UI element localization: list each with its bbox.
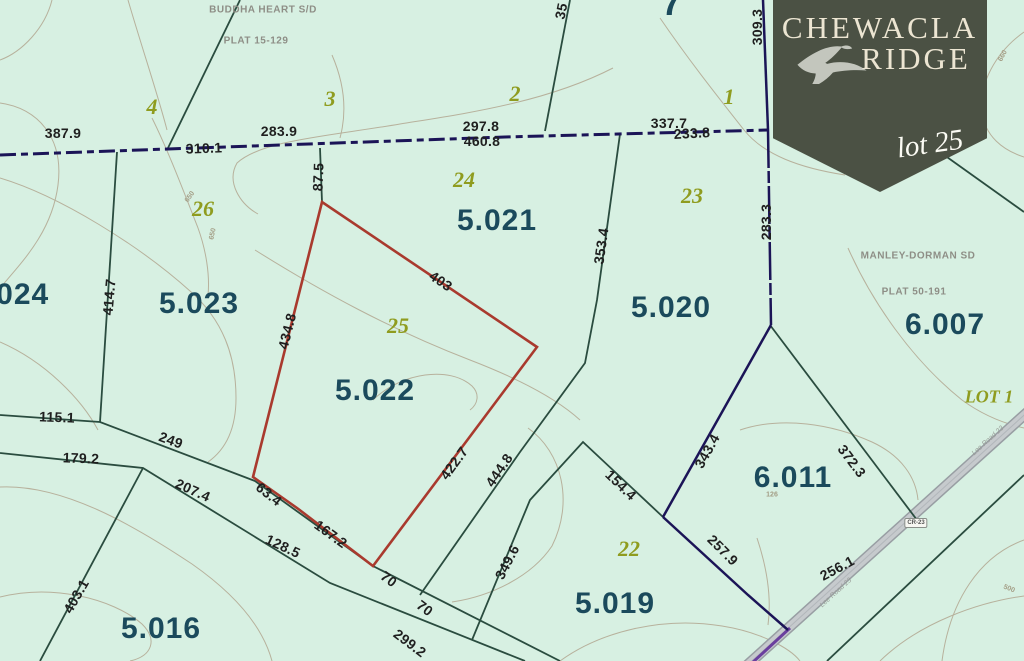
dimension-label: 87.5: [310, 163, 327, 192]
parcel-id-label: 5.020: [631, 291, 711, 325]
subdivision-label: PLAT 15-129: [224, 36, 289, 47]
lot-number-label: LOT 1: [965, 387, 1014, 408]
badge-title-line1: CHEWACLA: [773, 12, 987, 43]
parcel-id-label: 5.023: [159, 287, 239, 321]
dimension-label: 387.9: [45, 125, 82, 141]
parcel-id-label: .024: [0, 278, 49, 312]
dimension-label: 179.2: [62, 449, 99, 466]
lot-number-label: 24: [453, 167, 475, 193]
parcel-id-label: 5.022: [335, 374, 415, 408]
dimension-label: 283.3: [758, 204, 774, 241]
lot-number-label: 25: [387, 313, 409, 339]
lot-number-label: 3: [325, 86, 336, 112]
subdivision-label: BUDDHA HEART S/D: [209, 5, 317, 16]
lot-number-label: 1: [724, 84, 735, 110]
contour-elevation-label: 126: [766, 492, 778, 499]
road-shield: CR-23: [904, 518, 927, 528]
north-boundary-dashed-line: [0, 130, 768, 155]
plat-map-page: { "map": { "badge": { "line1": "CHEWACLA…: [0, 0, 1024, 661]
dimension-label: 414.7: [99, 278, 118, 316]
dimension-label: 35: [551, 1, 570, 20]
lot-number-label: 2: [510, 81, 521, 107]
subdivision-label: PLAT 50-191: [882, 287, 947, 298]
parcel-id-label: 6.007: [905, 308, 985, 342]
lot-number-label: 4: [147, 94, 158, 120]
dimension-label: 309.3: [749, 9, 765, 46]
dimension-label: 233.8: [673, 124, 710, 142]
parcel-id-label: 6.011: [754, 461, 832, 495]
plat-map: BUDDHA HEART S/DPLAT 15-129MANLEY-DORMAN…: [0, 0, 1024, 661]
dimension-label: 115.1: [39, 408, 75, 425]
dimension-label: 297.8: [463, 118, 500, 134]
dimension-label: 460.8: [464, 133, 501, 149]
dimension-label: 310.1: [185, 139, 222, 156]
parcel-id-label: 5.021: [457, 204, 537, 238]
subdivision-label: MANLEY-DORMAN SD: [861, 251, 976, 262]
lot-number-label: 26: [192, 196, 214, 222]
parcel-id-label: 5.016: [121, 612, 201, 646]
road-edge-purple-line: [752, 628, 790, 661]
parcel-id-label: 5.019: [575, 587, 655, 621]
lot-number-label: 22: [618, 536, 640, 562]
lot-number-label: 23: [681, 183, 703, 209]
dimension-label: 283.9: [261, 123, 298, 139]
parcel-id-label: 7: [661, 0, 682, 24]
